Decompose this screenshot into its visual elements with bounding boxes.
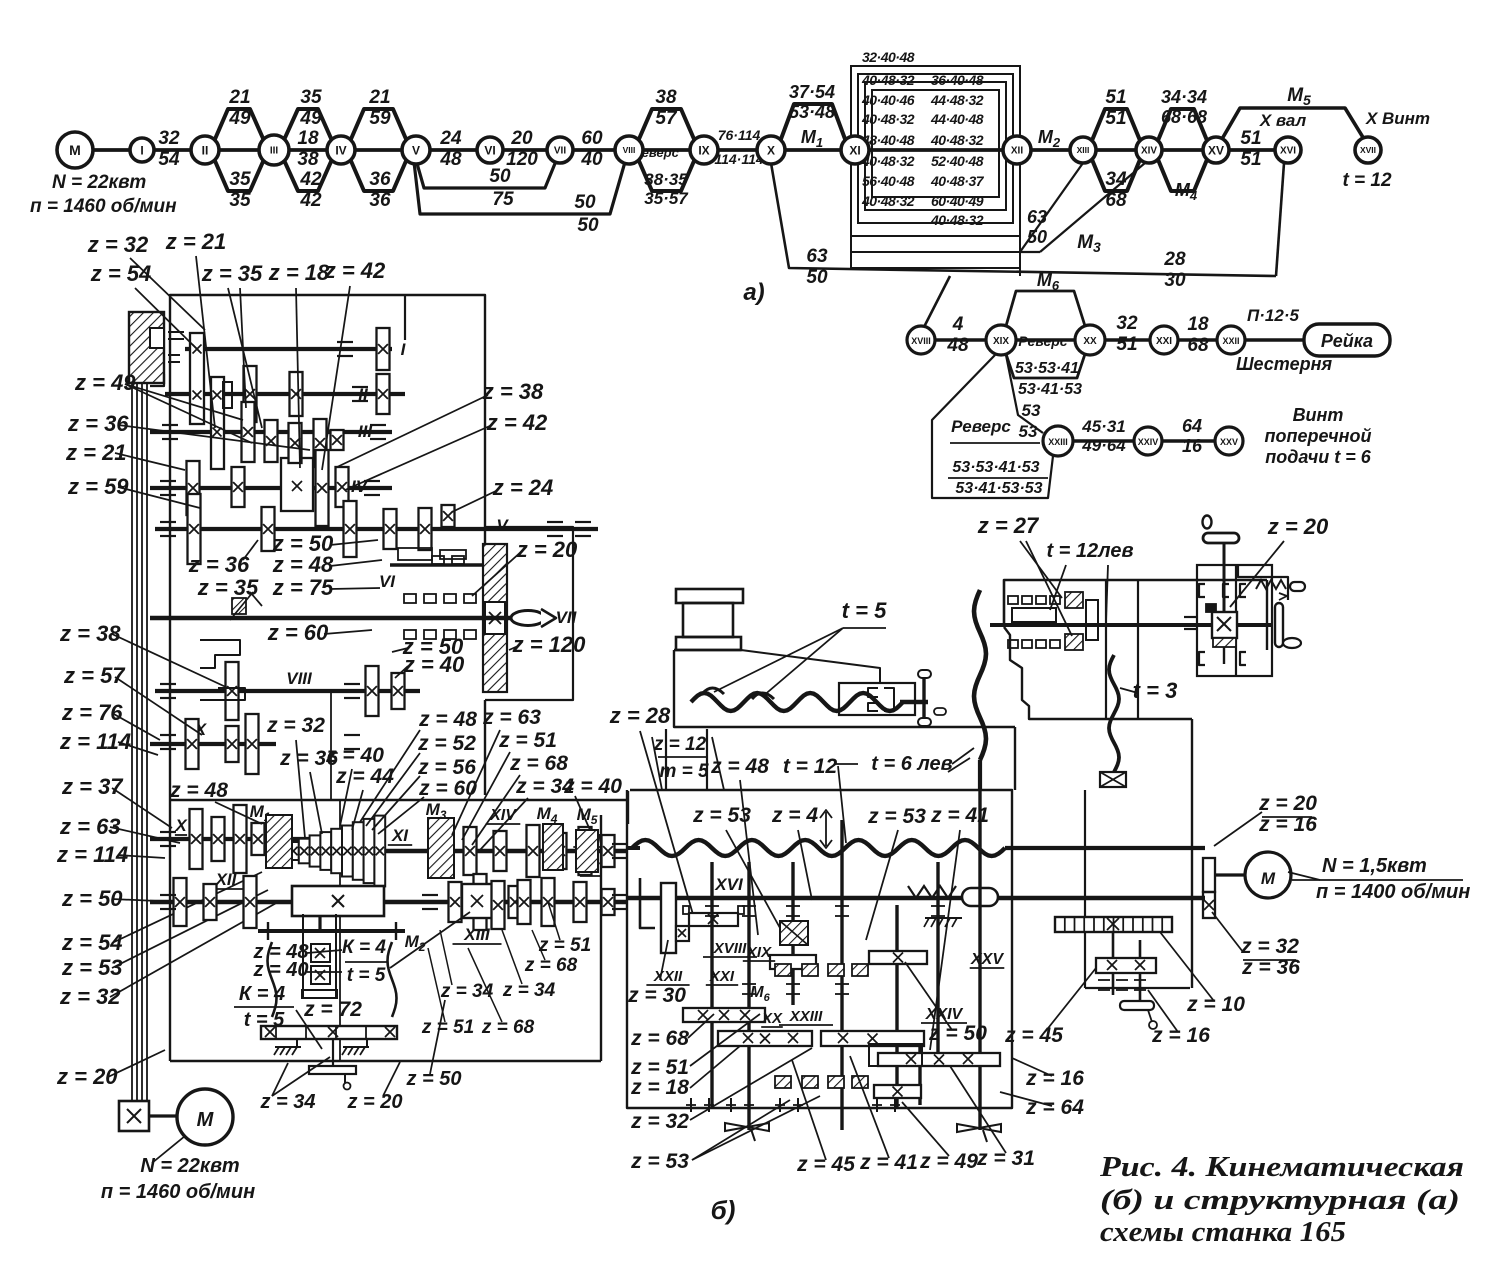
svg-text:п = 1460 об/мин: п = 1460 об/мин: [101, 1181, 255, 1203]
svg-text:z = 21: z = 21: [65, 440, 127, 465]
svg-text:z = 18: z = 18: [630, 1076, 689, 1099]
svg-text:60·40·49: 60·40·49: [931, 193, 984, 209]
svg-text:50: 50: [577, 215, 599, 236]
svg-text:IV: IV: [335, 143, 346, 157]
svg-text:21: 21: [368, 87, 390, 108]
svg-text:z = 49: z = 49: [919, 1150, 978, 1173]
svg-text:z = 20: z = 20: [516, 537, 578, 562]
svg-text:21: 21: [228, 87, 250, 108]
svg-text:XVIII: XVIII: [911, 336, 931, 346]
svg-text:38: 38: [655, 87, 677, 108]
svg-text:z = 59: z = 59: [67, 474, 129, 499]
svg-text:60: 60: [581, 128, 603, 149]
svg-text:Рис. 4. Кинематическая: Рис. 4. Кинематическая: [1099, 1151, 1464, 1183]
svg-text:m = 5: m = 5: [659, 761, 709, 782]
svg-text:z = 72: z = 72: [303, 998, 362, 1021]
svg-text:59: 59: [369, 108, 391, 129]
svg-text:подачи t = 6: подачи t = 6: [1265, 447, 1371, 467]
svg-text:z = 32: z = 32: [87, 232, 149, 257]
svg-text:X: X: [767, 143, 775, 157]
svg-text:53·48: 53·48: [789, 102, 835, 122]
svg-text:51: 51: [1240, 128, 1261, 149]
svg-text:схемы станка 165: схемы станка 165: [1100, 1216, 1346, 1248]
svg-text:М: М: [1261, 869, 1276, 888]
svg-text:z = 60: z = 60: [418, 777, 477, 800]
svg-text:VI: VI: [484, 143, 495, 157]
svg-text:35: 35: [229, 190, 251, 211]
svg-text:t = 12: t = 12: [1342, 170, 1392, 191]
svg-text:V: V: [496, 516, 509, 535]
svg-text:z = 56: z = 56: [417, 756, 476, 779]
svg-text:XXII: XXII: [1222, 336, 1239, 346]
svg-text:z = 32: z = 32: [266, 714, 325, 737]
svg-text:XVII: XVII: [1360, 145, 1376, 155]
svg-text:z = 12: z = 12: [653, 734, 707, 755]
svg-text:а): а): [743, 279, 764, 306]
svg-text:30: 30: [1164, 270, 1186, 291]
svg-text:поперечной: поперечной: [1265, 426, 1372, 446]
svg-text:XII: XII: [1011, 146, 1023, 157]
svg-text:45·31: 45·31: [1081, 417, 1125, 436]
svg-text:z = 18: z = 18: [268, 260, 330, 285]
svg-text:44·40·48: 44·40·48: [930, 111, 984, 127]
svg-text:36: 36: [369, 190, 391, 211]
svg-text:VI: VI: [379, 572, 396, 591]
svg-text:z = 64: z = 64: [1025, 1096, 1084, 1119]
svg-text:Х Винт: Х Винт: [1365, 109, 1430, 128]
svg-text:z = 24: z = 24: [492, 475, 554, 500]
svg-text:34·34: 34·34: [1161, 87, 1207, 107]
svg-text:z = 34: z = 34: [259, 1091, 315, 1113]
svg-text:z = 63: z = 63: [482, 706, 541, 729]
svg-text:75: 75: [492, 189, 514, 210]
svg-text:51: 51: [1105, 108, 1126, 129]
svg-text:t = 6 лев: t = 6 лев: [871, 753, 953, 775]
svg-text:40·48·32: 40·48·32: [930, 212, 984, 228]
svg-text:z = 68: z = 68: [630, 1027, 689, 1050]
svg-text:t = 12: t = 12: [783, 755, 838, 778]
svg-text:z = 38: z = 38: [59, 621, 121, 646]
svg-text:40·48·37: 40·48·37: [930, 173, 985, 189]
svg-text:z = 53: z = 53: [692, 804, 751, 827]
svg-text:z = 57: z = 57: [63, 663, 126, 688]
svg-text:42: 42: [299, 169, 322, 190]
svg-text:VIII: VIII: [623, 145, 636, 155]
svg-text:40·40·46: 40·40·46: [861, 92, 915, 108]
svg-text:18: 18: [1187, 314, 1209, 335]
svg-text:z = 53: z = 53: [630, 1150, 689, 1173]
svg-text:z = 27: z = 27: [977, 513, 1040, 538]
svg-text:XVIII: XVIII: [713, 940, 747, 957]
svg-text:53·41·53·53: 53·41·53·53: [955, 480, 1042, 497]
svg-text:z = 34: z = 34: [440, 981, 494, 1002]
svg-text:I: I: [140, 143, 143, 157]
svg-text:28: 28: [1163, 249, 1186, 270]
svg-text:М: М: [197, 1109, 215, 1131]
svg-text:56·40·48: 56·40·48: [862, 173, 915, 189]
svg-text:Реверс: Реверс: [951, 417, 1011, 436]
svg-text:32: 32: [1116, 313, 1138, 334]
svg-text:z = 51: z = 51: [498, 729, 557, 752]
svg-text:120: 120: [506, 149, 538, 170]
svg-text:VII: VII: [554, 146, 566, 157]
svg-text:53·53·41: 53·53·41: [1015, 360, 1079, 377]
svg-text:t = 12лев: t = 12лев: [1046, 540, 1133, 562]
svg-text:XVI: XVI: [1280, 146, 1296, 157]
svg-text:П·12·5: П·12·5: [1247, 306, 1299, 325]
svg-text:N = 1,5квт: N = 1,5квт: [1322, 855, 1427, 877]
svg-text:z = 20: z = 20: [1267, 514, 1329, 539]
svg-text:Х вал: Х вал: [1259, 111, 1307, 130]
svg-text:z = 50: z = 50: [405, 1068, 461, 1090]
svg-text:z = 40: z = 40: [325, 744, 384, 767]
svg-text:N = 22квт: N = 22квт: [52, 172, 146, 193]
svg-text:49: 49: [299, 108, 322, 129]
svg-text:z = 51: z = 51: [421, 1017, 474, 1038]
svg-text:z = 30: z = 30: [627, 984, 686, 1007]
svg-text:z = 60: z = 60: [267, 620, 329, 645]
svg-text:51: 51: [1240, 149, 1261, 170]
svg-text:24: 24: [439, 128, 462, 149]
svg-text:XIV: XIV: [1141, 146, 1157, 157]
svg-text:51: 51: [1105, 87, 1126, 108]
svg-text:z = 20: z = 20: [1258, 792, 1317, 815]
svg-text:XXV: XXV: [970, 951, 1004, 968]
svg-text:XXI: XXI: [709, 968, 735, 985]
svg-text:XXIV: XXIV: [925, 1006, 964, 1023]
svg-text:40·48·32: 40·48·32: [930, 132, 984, 148]
svg-text:z = 51: z = 51: [538, 935, 591, 956]
svg-text:50: 50: [806, 267, 828, 288]
svg-text:51: 51: [1116, 334, 1137, 355]
svg-text:z = 42: z = 42: [324, 258, 386, 283]
svg-text:z = 68: z = 68: [524, 955, 578, 976]
svg-text:XXIII: XXIII: [789, 1008, 823, 1025]
svg-text:z = 76: z = 76: [61, 700, 123, 725]
svg-text:z = 34: z = 34: [502, 980, 556, 1001]
svg-text:б): б): [711, 1195, 736, 1225]
svg-text:z = 48: z = 48: [418, 708, 477, 731]
svg-text:XIX: XIX: [746, 944, 772, 961]
svg-text:XVI: XVI: [714, 875, 744, 894]
svg-text:z = 49: z = 49: [74, 370, 136, 395]
svg-text:XI: XI: [849, 143, 860, 157]
svg-text:42: 42: [299, 190, 322, 211]
svg-text:52·40·48: 52·40·48: [931, 153, 984, 169]
svg-text:53·53·41·53: 53·53·41·53: [952, 459, 1039, 476]
svg-text:z = 120: z = 120: [512, 632, 587, 657]
svg-text:40·48·32: 40·48·32: [861, 193, 915, 209]
svg-text:z = 21: z = 21: [165, 229, 227, 254]
svg-text:z = 68: z = 68: [481, 1017, 535, 1038]
svg-text:68·68: 68·68: [1161, 107, 1207, 127]
svg-text:z = 40: z = 40: [563, 775, 622, 798]
svg-text:z = 31: z = 31: [976, 1147, 1035, 1170]
svg-text:XXIV: XXIV: [1138, 437, 1159, 447]
svg-text:35: 35: [300, 87, 322, 108]
svg-text:z = 40: z = 40: [403, 652, 465, 677]
svg-text:49: 49: [228, 108, 251, 129]
svg-text:t = 5: t = 5: [244, 1009, 285, 1031]
svg-text:z = 53: z = 53: [867, 805, 926, 828]
svg-text:68: 68: [1187, 335, 1209, 356]
svg-text:18: 18: [297, 128, 319, 149]
svg-text:35·57: 35·57: [644, 189, 689, 208]
svg-text:20: 20: [510, 128, 533, 149]
svg-text:z = 45: z = 45: [1004, 1024, 1063, 1047]
svg-text:49·64: 49·64: [1081, 436, 1126, 455]
svg-text:38·35: 38·35: [644, 170, 688, 189]
svg-text:Винт: Винт: [1293, 405, 1344, 425]
svg-text:XV: XV: [1208, 143, 1224, 157]
svg-text:II: II: [202, 143, 209, 157]
svg-text:36·40·48: 36·40·48: [931, 72, 984, 88]
svg-text:40·48·32: 40·48·32: [861, 72, 915, 88]
svg-text:(б) и структурная (а): (б) и структурная (а): [1100, 1184, 1460, 1216]
svg-text:III: III: [270, 146, 279, 157]
svg-text:63: 63: [1027, 207, 1047, 227]
svg-text:z = 16: z = 16: [1025, 1067, 1084, 1090]
svg-text:32: 32: [158, 128, 180, 149]
svg-text:XXIII: XXIII: [1048, 437, 1068, 447]
svg-text:N = 22квт: N = 22квт: [140, 1155, 239, 1177]
svg-text:z = 48: z = 48: [272, 552, 334, 577]
svg-text:53: 53: [1019, 422, 1038, 441]
svg-text:53·41·53: 53·41·53: [1018, 381, 1082, 398]
svg-text:XXI: XXI: [1156, 336, 1172, 347]
svg-text:Реверс: Реверс: [1018, 333, 1067, 349]
svg-text:16: 16: [1182, 436, 1203, 456]
svg-text:4: 4: [952, 314, 964, 335]
svg-text:t = 3: t = 3: [1133, 678, 1178, 703]
svg-text:40·48·32: 40·48·32: [861, 111, 915, 127]
svg-text:57: 57: [655, 108, 678, 129]
svg-text:ᴢ = 16: ᴢ = 16: [1151, 1024, 1210, 1047]
svg-text:XI: XI: [391, 826, 409, 845]
svg-text:XXV: XXV: [1220, 437, 1238, 447]
svg-text:z = 32: z = 32: [630, 1110, 689, 1133]
svg-text:z = 28: z = 28: [609, 703, 671, 728]
svg-text:XXII: XXII: [653, 968, 683, 985]
svg-text:XX: XX: [1083, 336, 1097, 347]
svg-text:63: 63: [806, 246, 828, 267]
svg-text:VIII: VIII: [286, 669, 313, 688]
svg-text:X: X: [174, 816, 188, 835]
svg-text:37·54: 37·54: [789, 82, 835, 102]
svg-text:К = 4: К = 4: [239, 983, 285, 1005]
svg-text:64: 64: [1182, 416, 1202, 436]
svg-text:z = 36: z = 36: [188, 552, 250, 577]
svg-text:z = 10: z = 10: [1186, 993, 1245, 1016]
svg-text:z = 114: z = 114: [59, 729, 131, 754]
svg-text:38: 38: [297, 149, 319, 170]
svg-text:Шестерня: Шестерня: [1236, 354, 1333, 374]
svg-text:z = 114: z = 114: [56, 842, 128, 867]
svg-text:z = 48: z = 48: [169, 779, 228, 802]
svg-text:32·40·48: 32·40·48: [862, 49, 915, 65]
svg-text:z = 20: z = 20: [346, 1091, 402, 1113]
svg-text:z = 40: z = 40: [252, 959, 308, 981]
svg-text:z = 41: z = 41: [930, 804, 989, 827]
svg-text:z = 32: z = 32: [1240, 935, 1299, 958]
svg-text:z = 48: z = 48: [710, 755, 769, 778]
svg-text:z = 36: z = 36: [67, 411, 129, 436]
svg-text:XIII: XIII: [1077, 145, 1090, 155]
svg-text:Рейка: Рейка: [1321, 331, 1373, 351]
svg-text:z = 50: z = 50: [928, 1022, 987, 1045]
svg-text:XIX: XIX: [993, 336, 1009, 347]
svg-text:z = 68: z = 68: [509, 752, 568, 775]
svg-text:t = 5: t = 5: [842, 598, 887, 623]
svg-text:п = 1460 об/мин: п = 1460 об/мин: [30, 196, 177, 217]
svg-text:36: 36: [369, 169, 391, 190]
svg-text:z = 54: z = 54: [90, 261, 152, 286]
svg-text:40: 40: [580, 149, 603, 170]
svg-text:z = 38: z = 38: [482, 379, 544, 404]
svg-text:М: М: [69, 142, 81, 158]
svg-text:35: 35: [229, 169, 251, 190]
svg-text:VII: VII: [556, 608, 578, 627]
svg-text:z = 42: z = 42: [486, 410, 548, 435]
svg-text:z = 75: z = 75: [272, 575, 334, 600]
svg-text:44·48·32: 44·48·32: [930, 92, 984, 108]
svg-text:76·114: 76·114: [718, 127, 761, 143]
svg-text:50: 50: [1027, 227, 1047, 247]
svg-text:48: 48: [439, 149, 462, 170]
svg-text:z = 35: z = 35: [201, 261, 263, 286]
svg-text:z = 52: z = 52: [417, 732, 476, 755]
svg-text:К = 4: К = 4: [342, 937, 386, 958]
svg-text:t = 5: t = 5: [347, 965, 386, 986]
svg-text:IX: IX: [698, 143, 709, 157]
svg-text:50: 50: [574, 192, 596, 213]
svg-text:54: 54: [158, 149, 180, 170]
svg-text:V: V: [412, 143, 420, 157]
svg-text:z = 4: z = 4: [771, 804, 818, 827]
svg-text:48: 48: [946, 335, 969, 356]
svg-text:п = 1400 об/мин: п = 1400 об/мин: [1316, 881, 1470, 903]
svg-text:z = 37: z = 37: [61, 774, 124, 799]
svg-text:53: 53: [1022, 401, 1041, 420]
